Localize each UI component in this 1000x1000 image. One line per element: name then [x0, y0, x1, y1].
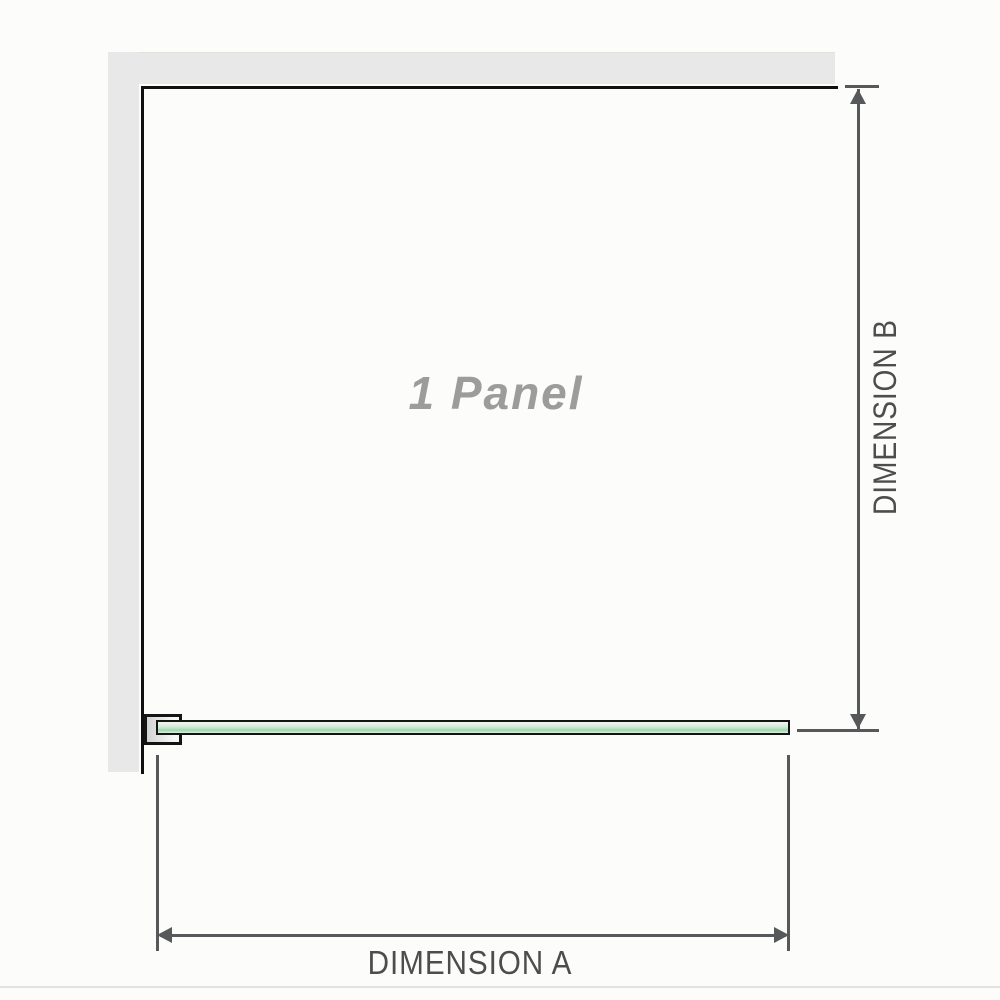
shower-panel-dimension-diagram: 1 Panel DIMENSION B DIMENSION A — [0, 0, 1000, 1000]
arrow-right-icon — [774, 927, 789, 943]
wall-top-segment — [108, 52, 835, 84]
dimension-b-top-tick — [845, 85, 879, 88]
dimension-b-bottom-tick — [797, 729, 879, 732]
dimension-b-line — [857, 89, 860, 729]
dimension-a-extension-line-right — [787, 755, 790, 951]
dimension-a-label: DIMENSION A — [290, 944, 650, 982]
wall-inner-edge-side — [141, 86, 144, 774]
panel-count-label: 1 Panel — [321, 366, 671, 420]
dimension-b-label: DIMENSION B — [867, 232, 901, 602]
bottom-divider — [0, 986, 1000, 988]
arrow-down-icon — [850, 714, 866, 729]
dimension-a-line — [160, 934, 786, 937]
wall-side-segment — [108, 52, 139, 772]
wall-inner-edge-top — [141, 86, 838, 89]
dimension-a-extension-line-left — [156, 755, 159, 951]
glass-panel — [156, 720, 790, 735]
